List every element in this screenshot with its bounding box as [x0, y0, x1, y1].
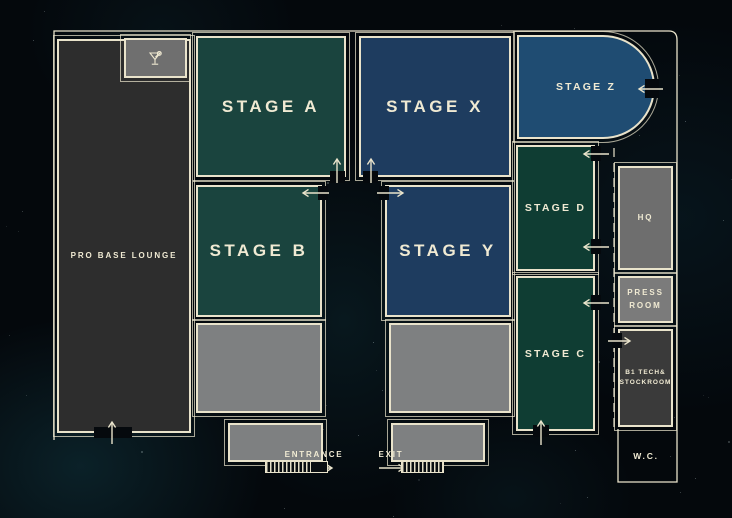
turnstile-hatch: [402, 462, 443, 472]
door-gap: [94, 427, 132, 438]
venue-map: PRO BASE LOUNGESTAGE ASTAGE XSTAGE ZSTAG…: [0, 0, 732, 518]
outer-wall: [54, 31, 677, 482]
entrance-turnstile: [265, 461, 328, 473]
turnstile-hatch: [266, 462, 311, 472]
exit-label: EXIT: [351, 450, 431, 459]
exit-turnstile: [401, 461, 444, 473]
map-annotations: [0, 0, 732, 518]
wc-label: W.C.: [616, 451, 676, 461]
